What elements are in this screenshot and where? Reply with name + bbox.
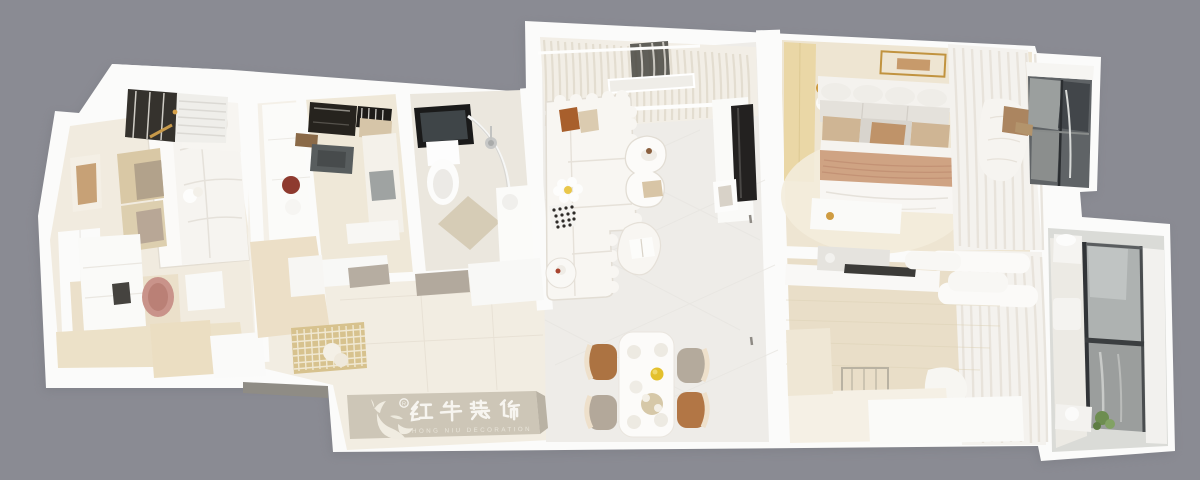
svg-text:R: R	[402, 402, 406, 408]
